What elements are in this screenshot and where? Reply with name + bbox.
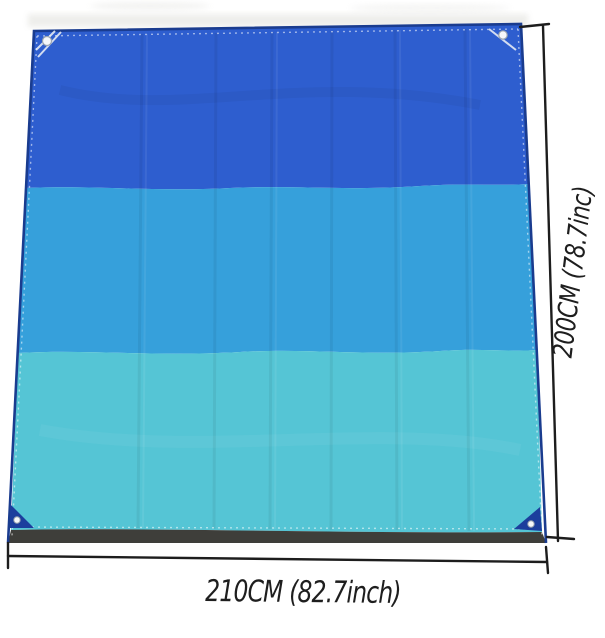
background-smudge [350, 4, 510, 12]
grommet-bottom-left-icon [14, 517, 20, 523]
width-dimension-line [8, 556, 547, 562]
width-dimension-lines [8, 543, 548, 573]
grommet-bottom-right-icon [528, 521, 534, 527]
background-smudge [90, 2, 210, 10]
mat-stripe-middle [18, 184, 537, 354]
beach-mat-illustration [0, 0, 605, 638]
grommet-top-right-icon [499, 31, 507, 39]
product-photo-beach-mat: 200CM (78.7inc) 210CM (82.7inch) [0, 0, 605, 638]
width-dimension-right-tick [546, 547, 548, 573]
height-dimension-bottom-tick [547, 537, 574, 539]
height-dimension-line [543, 26, 558, 541]
grommet-top-left-icon [43, 37, 52, 46]
